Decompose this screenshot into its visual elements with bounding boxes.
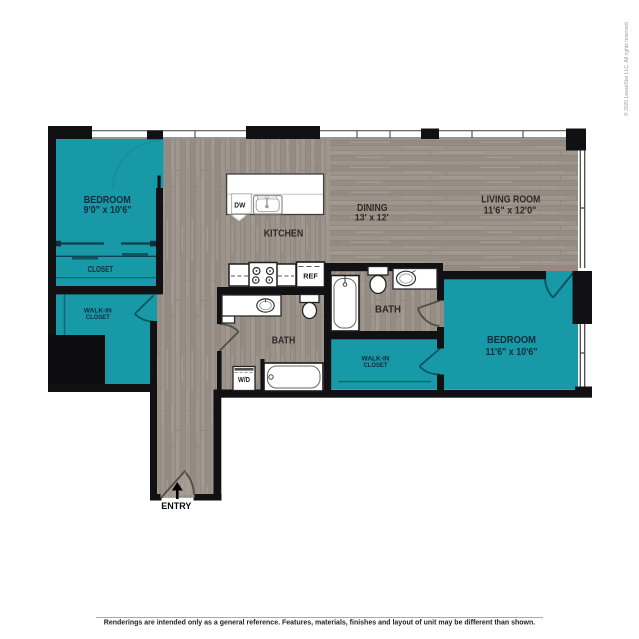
svg-text:CLOSET: CLOSET [364,362,389,369]
svg-text:13' x 12': 13' x 12' [355,212,389,223]
svg-text:LIVING ROOM: LIVING ROOM [481,194,540,206]
svg-text:BATH: BATH [272,335,296,347]
svg-text:9'0" x 10'6": 9'0" x 10'6" [84,205,132,216]
svg-text:11'6" x 10'6": 11'6" x 10'6" [486,347,538,358]
svg-text:CLOSET: CLOSET [88,265,114,274]
svg-text:KITCHEN: KITCHEN [264,229,304,240]
svg-text:BEDROOM: BEDROOM [487,334,536,346]
svg-text:11'6" x 12'0": 11'6" x 12'0" [484,206,537,217]
svg-text:BATH: BATH [375,303,401,315]
svg-text:DW: DW [234,201,246,210]
svg-text:REF: REF [303,272,318,281]
svg-text:ENTRY: ENTRY [161,501,191,511]
svg-text:CLOSET: CLOSET [86,314,111,321]
svg-text:© 2020 LeaseStar LLC. All righ: © 2020 LeaseStar LLC. All rights reserve… [623,21,630,116]
svg-text:Renderings are intended only a: Renderings are intended only as a genera… [104,620,535,627]
svg-text:W/D: W/D [238,377,250,384]
